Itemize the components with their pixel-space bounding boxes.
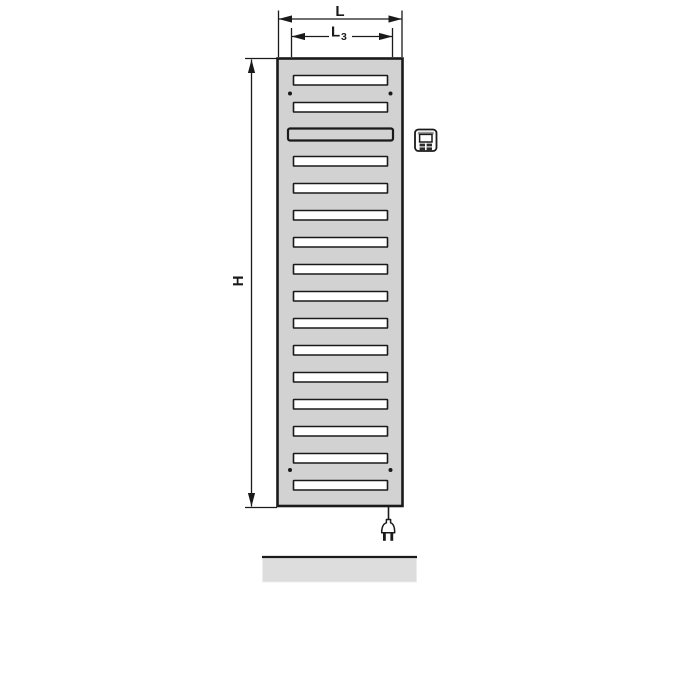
radiator-slat <box>294 373 388 383</box>
dim-label-height: H <box>230 276 247 287</box>
radiator-slat <box>294 103 388 113</box>
radiator-slat <box>294 481 388 491</box>
radiator-slat <box>294 184 388 194</box>
arrowhead-right <box>389 15 403 22</box>
mounting-dot <box>389 92 393 96</box>
control-unit-display <box>420 134 432 142</box>
plug-body <box>382 520 395 533</box>
control-unit-button <box>427 144 432 147</box>
radiator-body <box>278 59 403 507</box>
radiator-slat <box>294 238 388 248</box>
arrowhead-left <box>279 15 293 22</box>
floor-slab <box>263 558 417 582</box>
arrowhead-top <box>248 60 255 74</box>
radiator-slat <box>294 319 388 329</box>
plug-prong <box>390 533 393 541</box>
plug-prong <box>383 533 386 541</box>
dimension-height: H <box>230 59 277 508</box>
control-unit-button <box>420 147 425 150</box>
mounting-dot <box>288 92 292 96</box>
dim-label-total-width: L <box>335 3 344 20</box>
mounting-dot <box>389 468 393 472</box>
radiator-slat <box>294 427 388 437</box>
control-unit-button <box>420 144 425 147</box>
arrowhead-left <box>292 33 306 40</box>
radiator-slat <box>294 76 388 86</box>
arrowhead-right <box>379 33 393 40</box>
radiator-slat <box>294 400 388 410</box>
radiator-slat <box>294 346 388 356</box>
dim-label-slat-width: L <box>331 24 340 41</box>
radiator-slat <box>294 265 388 275</box>
radiator-slat <box>294 292 388 302</box>
mounting-dot <box>288 468 292 472</box>
radiator-slat <box>294 157 388 167</box>
radiator-slat <box>294 454 388 464</box>
control-unit-icon <box>415 130 437 152</box>
radiator-slat <box>294 211 388 221</box>
floor <box>262 557 417 582</box>
dim-label-slat-width-subscript: 3 <box>341 31 347 43</box>
dimension-total-width: L <box>279 3 403 57</box>
arrowhead-bottom <box>248 493 255 507</box>
radiator-heating-element-slat <box>288 129 393 141</box>
technical-drawing-canvas: L L 3 H <box>0 0 700 700</box>
dimension-slat-width: L 3 <box>292 24 393 58</box>
power-plug-icon <box>382 520 395 541</box>
control-unit-button <box>427 147 432 150</box>
